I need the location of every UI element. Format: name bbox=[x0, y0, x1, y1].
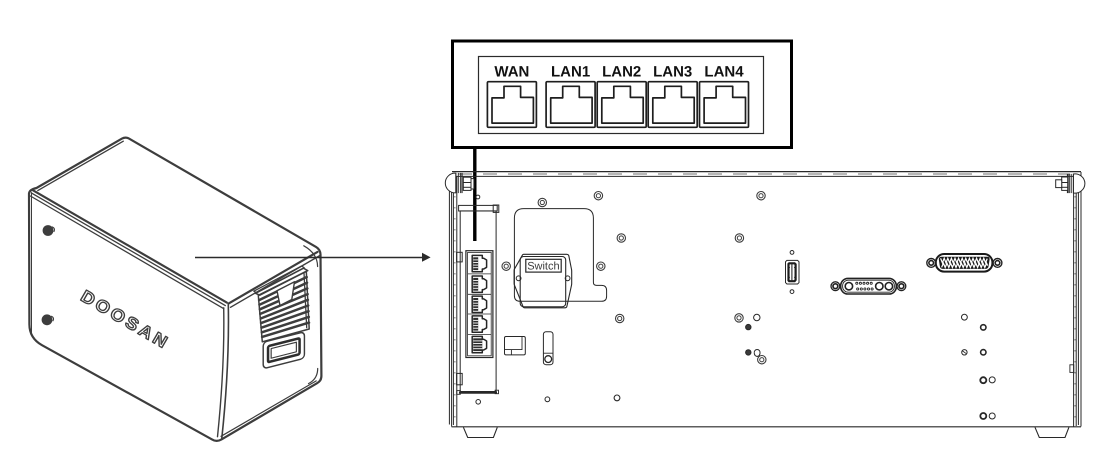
svg-text:LAN1: LAN1 bbox=[551, 64, 590, 81]
svg-text:LAN3: LAN3 bbox=[653, 64, 692, 81]
svg-text:Switch: Switch bbox=[527, 260, 559, 272]
svg-text:LAN2: LAN2 bbox=[602, 64, 641, 81]
svg-text:WAN: WAN bbox=[494, 64, 529, 81]
svg-text:LAN4: LAN4 bbox=[704, 64, 744, 81]
